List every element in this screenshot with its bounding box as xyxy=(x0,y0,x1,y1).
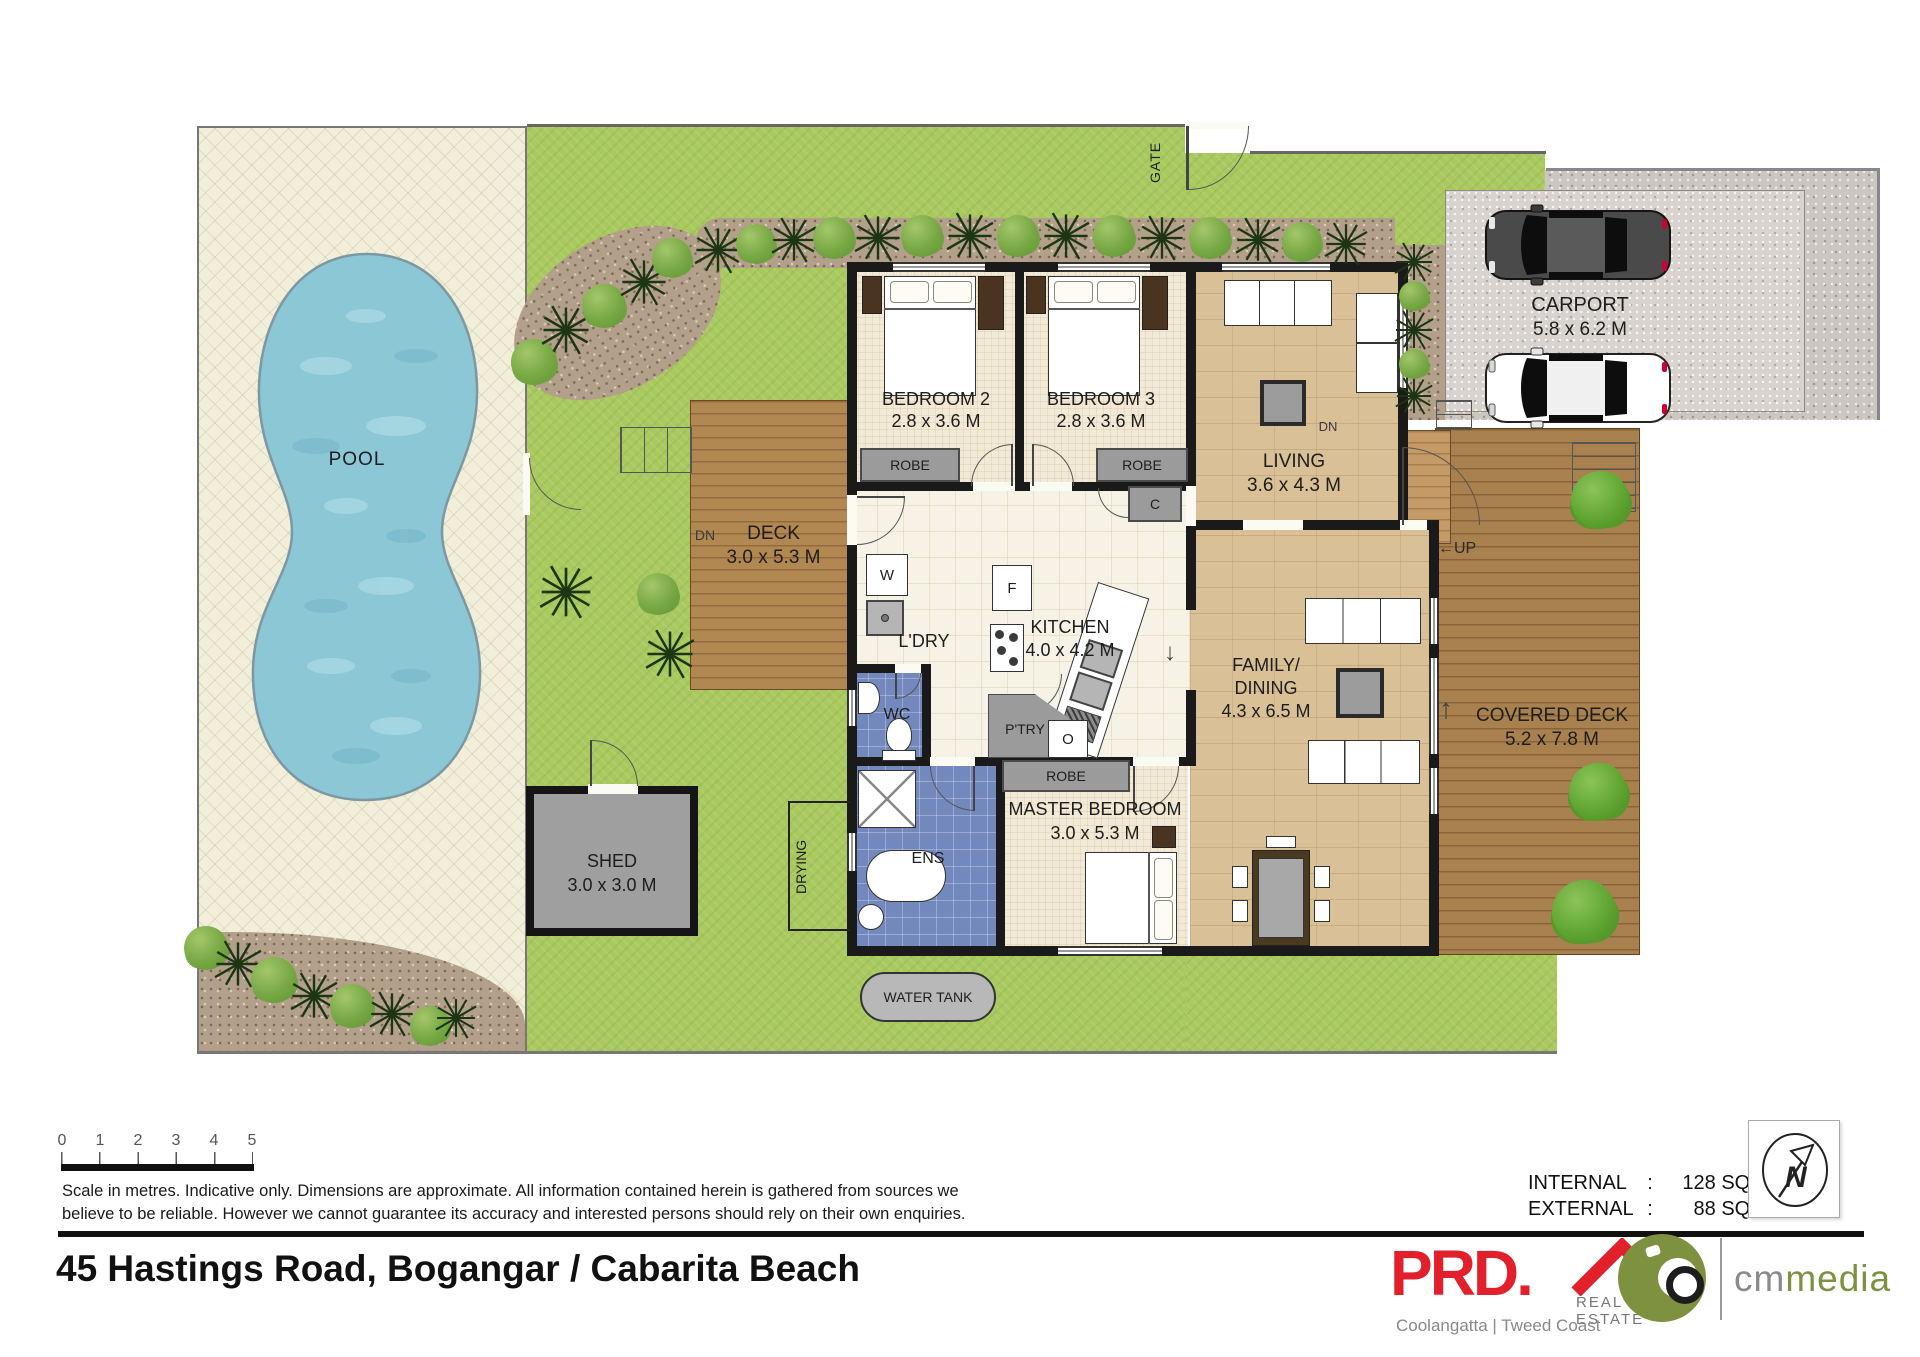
drying-label: DRYING xyxy=(794,818,814,916)
garden-bed-top xyxy=(695,218,1395,268)
ens-label: ENS xyxy=(896,850,960,868)
wall-kitchen-family-b xyxy=(1186,690,1196,757)
ens-shower xyxy=(858,770,916,828)
window-family-2 xyxy=(1429,768,1439,814)
door-leaf-hall xyxy=(857,496,905,498)
ens-basin xyxy=(858,904,884,930)
laundry-label: L'DRY xyxy=(868,632,980,652)
door-leaf-entry xyxy=(1402,447,1404,525)
scale-tick-label: 4 xyxy=(208,1132,220,1150)
door-leaf-bed2 xyxy=(1011,444,1013,486)
fridge-label: F xyxy=(1007,580,1016,597)
window-living-top xyxy=(1222,262,1330,272)
scale-tick-label: 0 xyxy=(56,1132,68,1150)
robe-master: ROBE xyxy=(1002,760,1130,792)
oven: O xyxy=(1048,720,1088,758)
entry-steps xyxy=(1436,400,1472,430)
fence-top-left xyxy=(527,124,1187,127)
bedroom3-label: BEDROOM 3 xyxy=(1021,390,1181,410)
scale-tick-label: 3 xyxy=(170,1132,182,1150)
shed-dims: 3.0 x 3.0 M xyxy=(530,876,694,896)
scale-bar: 0 1 2 3 4 5 xyxy=(56,1132,276,1176)
dining-chair xyxy=(1314,900,1330,922)
washer-label: W xyxy=(880,567,894,584)
covered-deck-label: COVERED DECK xyxy=(1462,706,1642,727)
address-title: 45 Hastings Road, Bogangar / Cabarita Be… xyxy=(56,1248,860,1290)
bed2-side-table xyxy=(862,276,882,314)
area-internal-row: INTERNAL : 128 SQ.M. xyxy=(1528,1172,1778,1196)
robe-master-label: ROBE xyxy=(1046,768,1086,784)
covered-deck-steps xyxy=(1572,442,1636,512)
car-white xyxy=(1483,346,1673,430)
scale-tick-label: 1 xyxy=(94,1132,106,1150)
bed3-side-table xyxy=(1026,276,1046,314)
lawn-bottom-right xyxy=(1185,950,1557,1053)
opening-wc xyxy=(895,664,921,673)
door-leaf-wc xyxy=(895,673,897,699)
bed3-pillow xyxy=(1054,281,1093,303)
pool xyxy=(236,246,498,808)
oven-label: O xyxy=(1062,731,1074,748)
door-leaf-ens xyxy=(973,766,975,811)
disclaimer-line-2: believe to be reliable. However we canno… xyxy=(62,1205,965,1224)
carport-label: CARPORT xyxy=(1478,294,1682,316)
internal-label: INTERNAL xyxy=(1528,1172,1638,1196)
kitchen-dims: 4.0 x 4.2 M xyxy=(978,641,1162,661)
window-bedroom2 xyxy=(893,262,985,272)
cmmedia-media: media xyxy=(1785,1258,1891,1299)
prd-wordmark: PRD. xyxy=(1390,1236,1531,1310)
bed3-side-table xyxy=(1142,276,1168,330)
cmmedia-logo: cmmedia xyxy=(1618,1234,1888,1330)
north-arrow-box: N xyxy=(1748,1120,1840,1218)
car-dark xyxy=(1483,203,1673,287)
north-arrow-icon: N xyxy=(1749,1121,1841,1219)
shed-door-leaf xyxy=(590,740,592,786)
covered-deck-dims: 5.2 x 7.8 M xyxy=(1462,730,1642,751)
scale-bar-line xyxy=(61,1164,254,1171)
master-label: MASTER BEDROOM xyxy=(985,800,1205,820)
family-sofa-top xyxy=(1305,598,1421,644)
robe-bed2: ROBE xyxy=(860,448,960,482)
wall-kitchen-family-a xyxy=(1186,530,1196,610)
deck-left xyxy=(690,400,857,690)
dining-table-top xyxy=(1258,858,1304,938)
dining-chair xyxy=(1232,900,1248,922)
robe-bed2-label: ROBE xyxy=(890,457,930,473)
family-coffee-table xyxy=(1336,668,1384,718)
bedroom3-dims: 2.8 x 3.6 M xyxy=(1021,412,1181,432)
fridge: F xyxy=(992,565,1032,611)
family-sofa-bottom xyxy=(1308,740,1420,784)
water-tank: WATER TANK xyxy=(860,972,996,1022)
bed2-pillow xyxy=(890,281,929,303)
cupboard: C xyxy=(1128,486,1182,522)
external-colon: : xyxy=(1638,1198,1662,1222)
washer: W xyxy=(866,554,908,596)
up-label: ←UP xyxy=(1438,540,1502,558)
living-dims: 3.6 x 4.3 M xyxy=(1192,476,1396,497)
floorplan-canvas: GATE POOL xyxy=(0,0,1920,1357)
door-leaf-bed3 xyxy=(1032,444,1034,486)
window-bedroom3 xyxy=(1058,262,1150,272)
cmmedia-camera-icon xyxy=(1618,1234,1706,1322)
bed2-pillow xyxy=(933,281,972,303)
svg-text:N: N xyxy=(1785,1161,1808,1194)
scale-ticks xyxy=(61,1152,253,1164)
bedroom2-label: BEDROOM 2 xyxy=(857,390,1015,410)
cmmedia-cm: cm xyxy=(1734,1258,1785,1299)
area-external-row: EXTERNAL : 88 SQ.M. xyxy=(1528,1198,1778,1222)
living-sofa xyxy=(1224,280,1332,326)
opening-master xyxy=(1133,757,1179,766)
prd-region-label: Coolangatta | Tweed Coast xyxy=(1396,1316,1600,1336)
bed3-pillow xyxy=(1097,281,1136,303)
dining-chair xyxy=(1314,866,1330,888)
master-blanket-line xyxy=(1148,852,1150,944)
master-pillow xyxy=(1154,900,1173,940)
window-wc xyxy=(847,690,857,726)
deck-label: DECK xyxy=(690,524,857,545)
external-label: EXTERNAL xyxy=(1528,1198,1638,1222)
boundary-driveway-top xyxy=(1546,168,1880,171)
carport-dims: 5.8 x 6.2 M xyxy=(1478,320,1682,341)
bed2-blanket-line xyxy=(884,308,976,310)
arrow-up-icon: ↑ xyxy=(1434,694,1458,725)
deck-dims: 3.0 x 5.3 M xyxy=(690,548,857,569)
window-master xyxy=(1058,946,1162,956)
opening-ens xyxy=(930,757,975,766)
shed-label: SHED xyxy=(530,852,694,872)
master-dims: 3.0 x 5.3 M xyxy=(985,824,1205,844)
wc-label: WC xyxy=(869,706,925,724)
family-label-2: DINING xyxy=(1192,679,1340,699)
window-living-right xyxy=(1398,296,1408,388)
disclaimer-line-1: Scale in metres. Indicative only. Dimens… xyxy=(62,1182,959,1201)
kitchen-label: KITCHEN xyxy=(978,618,1162,638)
master-pillow xyxy=(1154,858,1173,898)
pool-label: POOL xyxy=(297,450,417,471)
scale-tick-label: 2 xyxy=(132,1132,144,1150)
boundary-right xyxy=(1877,168,1880,420)
bed2-side-table xyxy=(978,276,1004,330)
robe-bed3: ROBE xyxy=(1096,448,1188,482)
bedroom2-dims: 2.8 x 3.6 M xyxy=(857,412,1015,432)
family-label-1: FAMILY/ xyxy=(1192,656,1340,676)
robe-bed3-label: ROBE xyxy=(1122,457,1162,473)
living-window-seat xyxy=(1356,293,1398,393)
boundary-bottom xyxy=(197,1051,1557,1054)
living-tv-unit xyxy=(1260,380,1306,426)
wc-toilet-tank xyxy=(882,750,916,761)
laundry-tub-drain xyxy=(881,614,889,622)
deck-steps xyxy=(620,427,692,473)
wall-ens-top xyxy=(847,757,1005,766)
cmmedia-divider xyxy=(1720,1238,1722,1320)
wall-bed-divider xyxy=(1015,262,1024,482)
internal-colon: : xyxy=(1638,1172,1662,1196)
gate-label: GATE xyxy=(1148,128,1170,196)
bed3-blanket-line xyxy=(1048,308,1140,310)
carport-dn-label: DN xyxy=(1308,420,1348,434)
opening-living-family xyxy=(1243,520,1303,530)
dining-chair xyxy=(1232,866,1248,888)
dining-chair-end xyxy=(1266,836,1296,848)
fence-top-right xyxy=(1250,151,1546,154)
island-sink xyxy=(1069,671,1113,711)
cupboard-label: C xyxy=(1150,496,1160,512)
living-label: LIVING xyxy=(1192,452,1396,473)
window-family-1 xyxy=(1429,598,1439,644)
family-dims: 4.3 x 6.5 M xyxy=(1192,702,1340,722)
water-tank-label: WATER TANK xyxy=(884,989,973,1005)
scale-tick-label: 5 xyxy=(246,1132,258,1150)
